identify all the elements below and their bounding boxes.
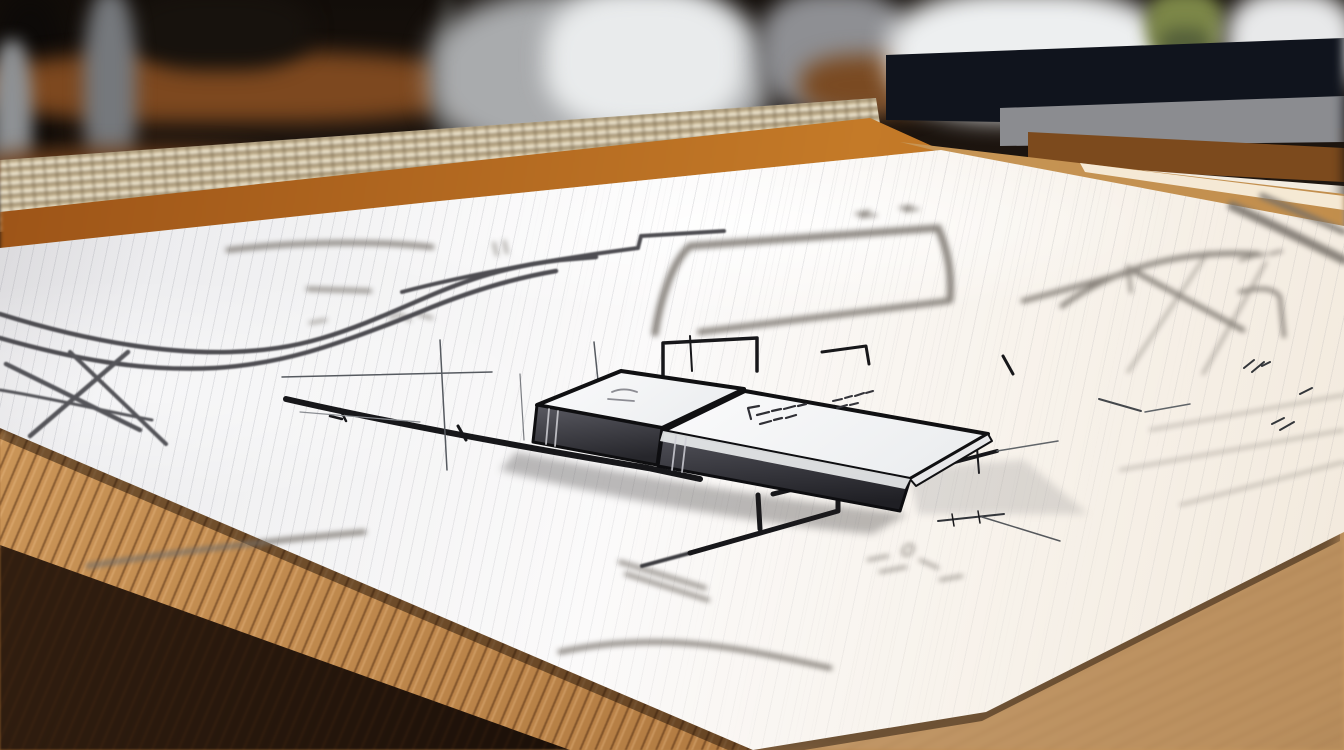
slab-top-scribbles-2 <box>833 391 873 408</box>
photo-blueprint-on-desk <box>0 0 1344 750</box>
floorplan-sketch <box>0 0 1344 750</box>
